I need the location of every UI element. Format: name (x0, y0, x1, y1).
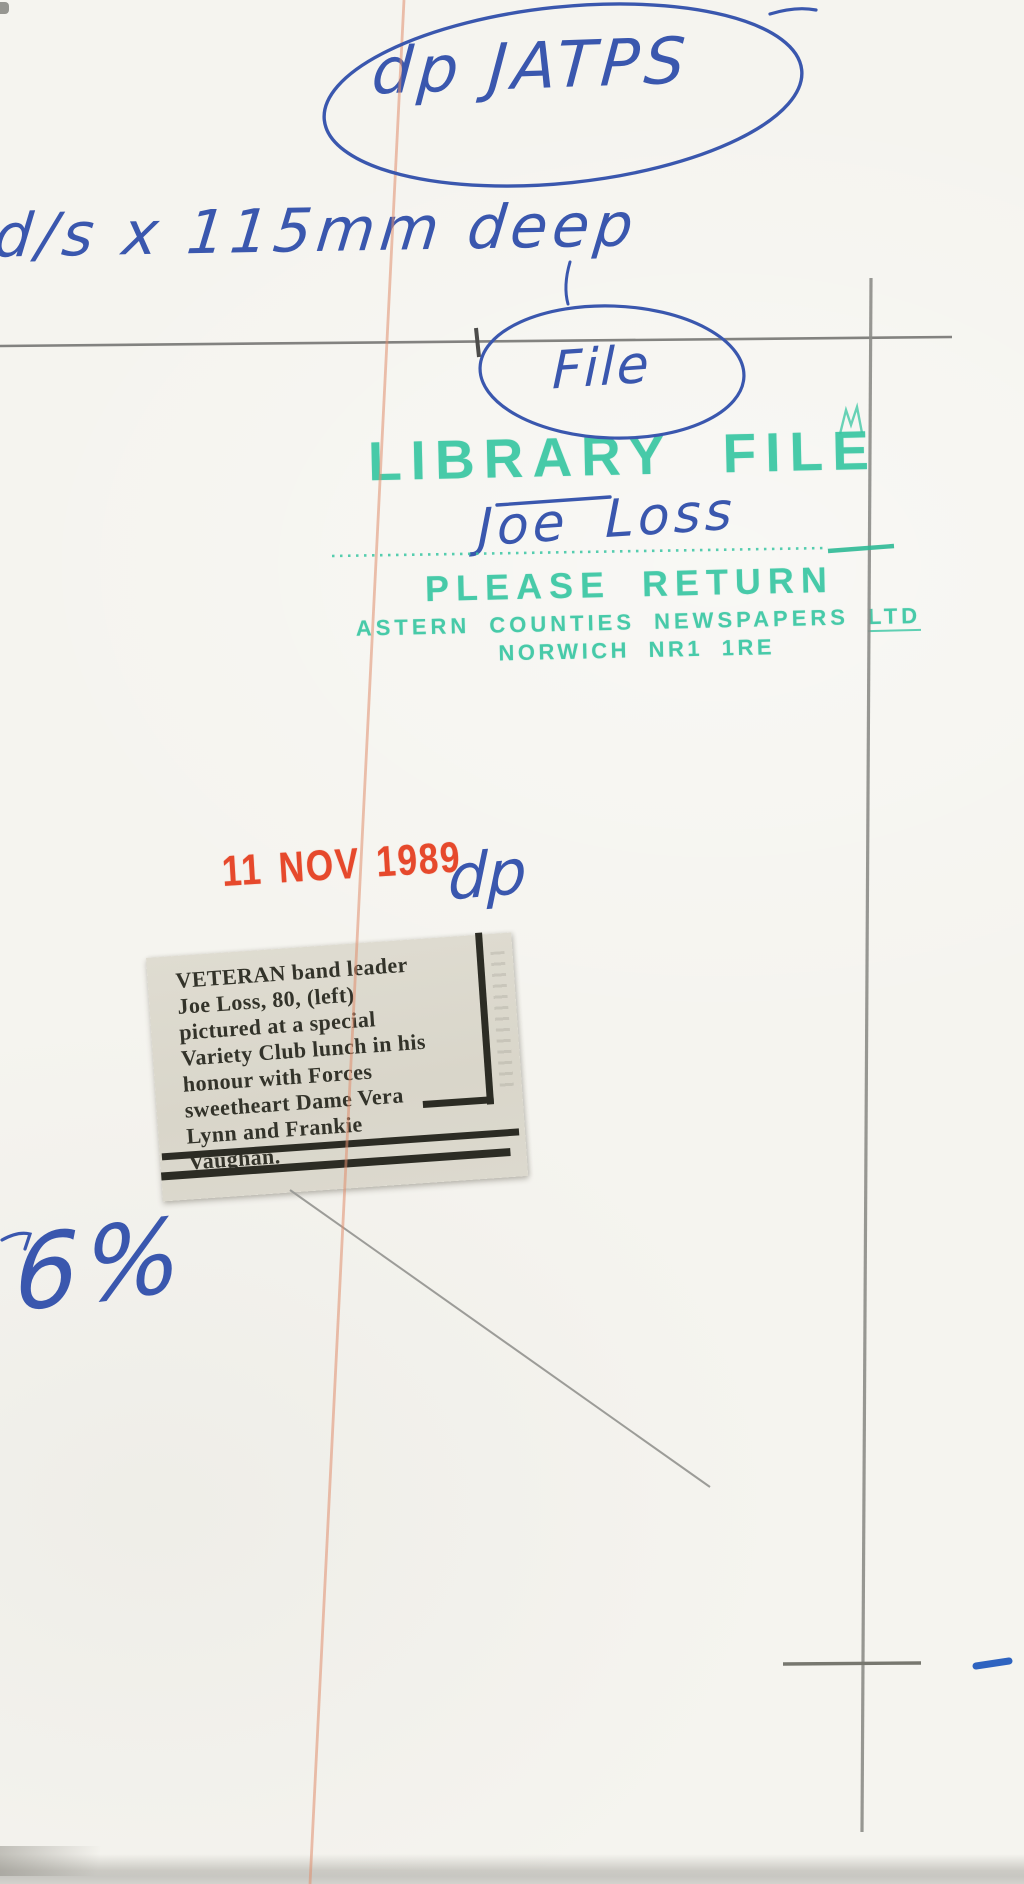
pen-flourish-stroke (770, 9, 816, 14)
pencil-line-diagonal (290, 1190, 710, 1487)
pencil-line-horizontal-bottom (783, 1663, 921, 1664)
pen-circle-file-note (478, 301, 746, 442)
pencil-line-vertical-right (862, 278, 871, 1832)
stamp-dotted-line (332, 548, 828, 556)
pen-tick-mark (2, 1233, 30, 1249)
stamp-squiggle-mark (840, 407, 862, 434)
pen-crossbar-stroke (497, 497, 610, 505)
scan-linework-overlay (0, 0, 1024, 1884)
pen-circle-top-code (315, 0, 811, 208)
pen-flourish-stroke (566, 262, 570, 304)
red-crease-line (310, 0, 404, 1884)
pencil-tick-mark (476, 328, 479, 357)
pen-dash-mark (976, 1661, 1009, 1666)
stamp-solid-underline (828, 546, 894, 551)
scanned-archive-card: dp JATPS d/s x 115mm deep File dp 6% LIB… (0, 0, 1024, 1884)
